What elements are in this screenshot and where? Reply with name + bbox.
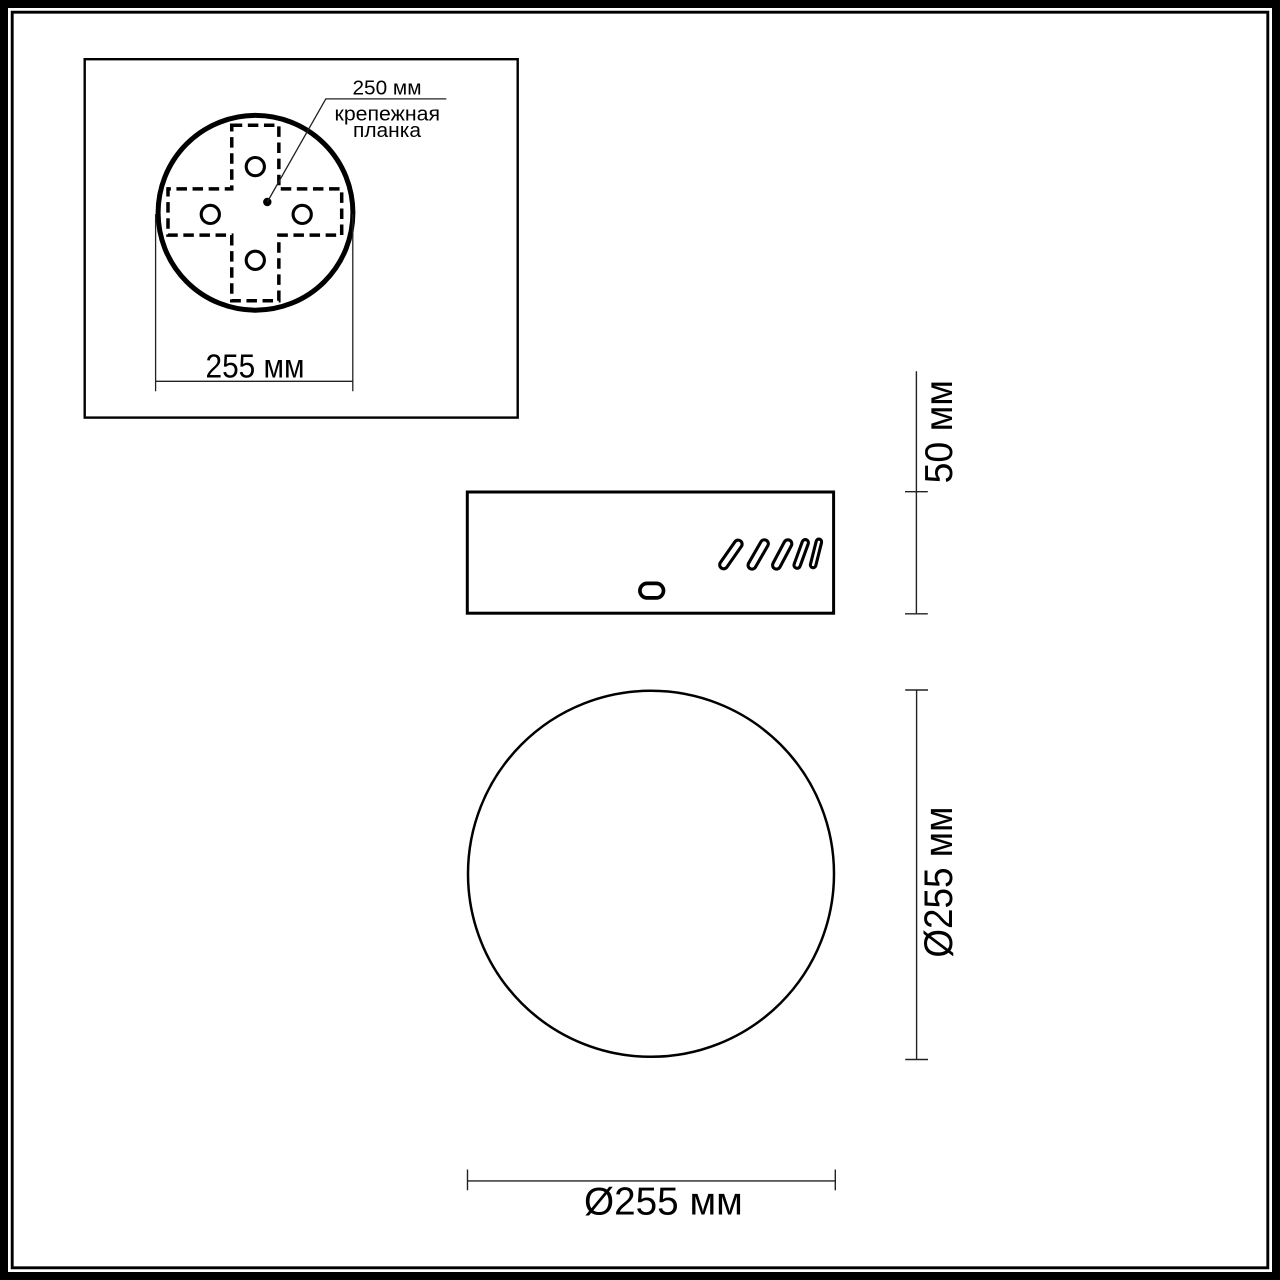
svg-text:50 мм: 50 мм [918,380,961,483]
svg-text:255 мм: 255 мм [206,348,305,385]
svg-text:планка: планка [353,120,422,142]
svg-text:250 мм: 250 мм [353,76,422,99]
svg-text:Ø255 мм: Ø255 мм [917,807,961,958]
svg-text:Ø255 мм: Ø255 мм [584,1181,743,1224]
